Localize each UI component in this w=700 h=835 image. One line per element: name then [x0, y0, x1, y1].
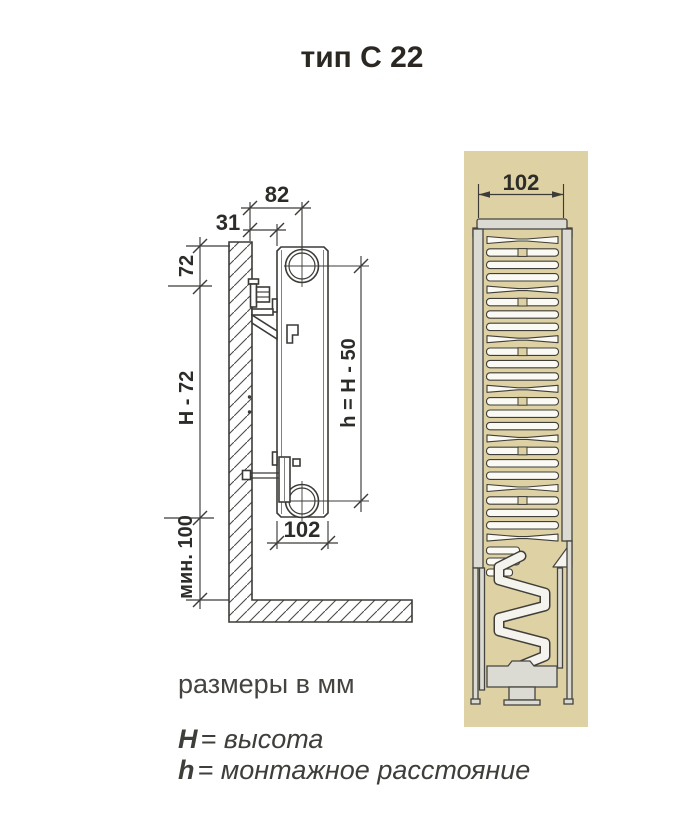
convector-fin-row	[487, 422, 559, 429]
dim-72-label: 72	[176, 255, 198, 277]
dim-mount-distance-label: h = H - 50	[338, 338, 360, 427]
units-note: размеры в мм	[178, 669, 530, 699]
dim-82-label: 82	[265, 182, 289, 207]
height-symbol: H	[178, 724, 201, 754]
section-view: 102	[464, 151, 588, 727]
back-panel	[473, 229, 483, 568]
front-panel	[562, 229, 572, 541]
dim-102-depth-label: 102	[284, 517, 321, 542]
convector-fin-row	[487, 497, 559, 505]
dim-h72-label: H - 72	[176, 371, 198, 425]
dimension-lines: 82 31 72 H - 72 мин. 100	[164, 182, 368, 609]
convector-fin-row	[487, 410, 559, 417]
convector-fin-row	[487, 298, 559, 306]
convector-fin-row	[487, 447, 559, 455]
convector-fin-row	[487, 348, 559, 356]
convector-fin-row	[487, 397, 559, 405]
height-definition: H= высота	[178, 724, 530, 755]
air-vent-valve	[249, 279, 270, 307]
mount-symbol: h	[178, 755, 198, 785]
convector-fin-row	[487, 261, 559, 268]
convector-fin-row	[487, 472, 559, 479]
dim-min100-label: мин. 100	[175, 515, 197, 599]
convector-fin-row	[487, 360, 559, 367]
mount-definition: h= монтажное расстояние	[178, 755, 530, 786]
convector-fin-row	[487, 311, 559, 318]
convector-fin-row	[487, 509, 559, 516]
legend: размеры в мм H= высота h= монтажное расс…	[178, 669, 530, 786]
convector-fin-row	[487, 274, 559, 281]
mount-def-text: = монтажное расстояние	[198, 755, 531, 785]
convector-fin-row	[487, 323, 559, 330]
top-grille-cap	[477, 219, 567, 229]
dim-31-label: 31	[216, 210, 240, 235]
installation-side-view: 82 31 72 H - 72 мин. 100	[164, 182, 412, 622]
convector-fin-row	[487, 460, 559, 467]
convector-fin-row	[487, 522, 559, 529]
section-width-label: 102	[503, 170, 540, 195]
convector-fin-row	[487, 373, 559, 380]
convector-fin-row	[487, 249, 559, 257]
drain-plug	[293, 459, 300, 466]
height-def-text: = высота	[201, 724, 324, 754]
page: тип С 22 102	[0, 0, 700, 835]
